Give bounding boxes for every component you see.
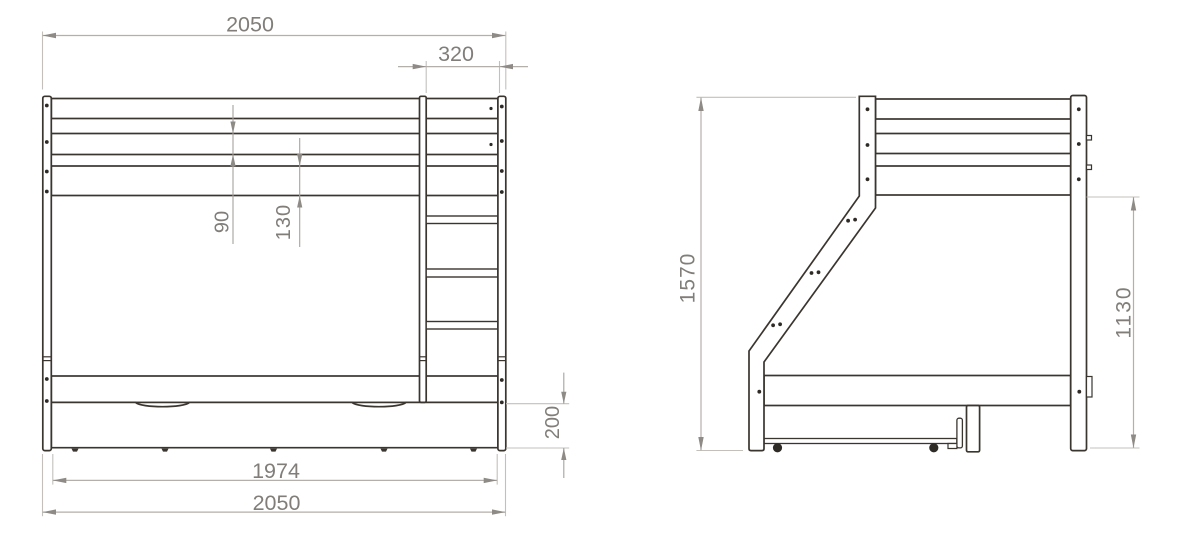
svg-text:90: 90 <box>212 211 234 233</box>
svg-text:2050: 2050 <box>226 13 274 37</box>
svg-text:1974: 1974 <box>252 459 300 483</box>
svg-text:200: 200 <box>542 406 564 439</box>
svg-text:2050: 2050 <box>253 491 301 515</box>
svg-text:1570: 1570 <box>677 253 700 304</box>
svg-text:130: 130 <box>273 204 295 240</box>
svg-text:320: 320 <box>438 42 474 66</box>
svg-text:1130: 1130 <box>1113 285 1136 338</box>
